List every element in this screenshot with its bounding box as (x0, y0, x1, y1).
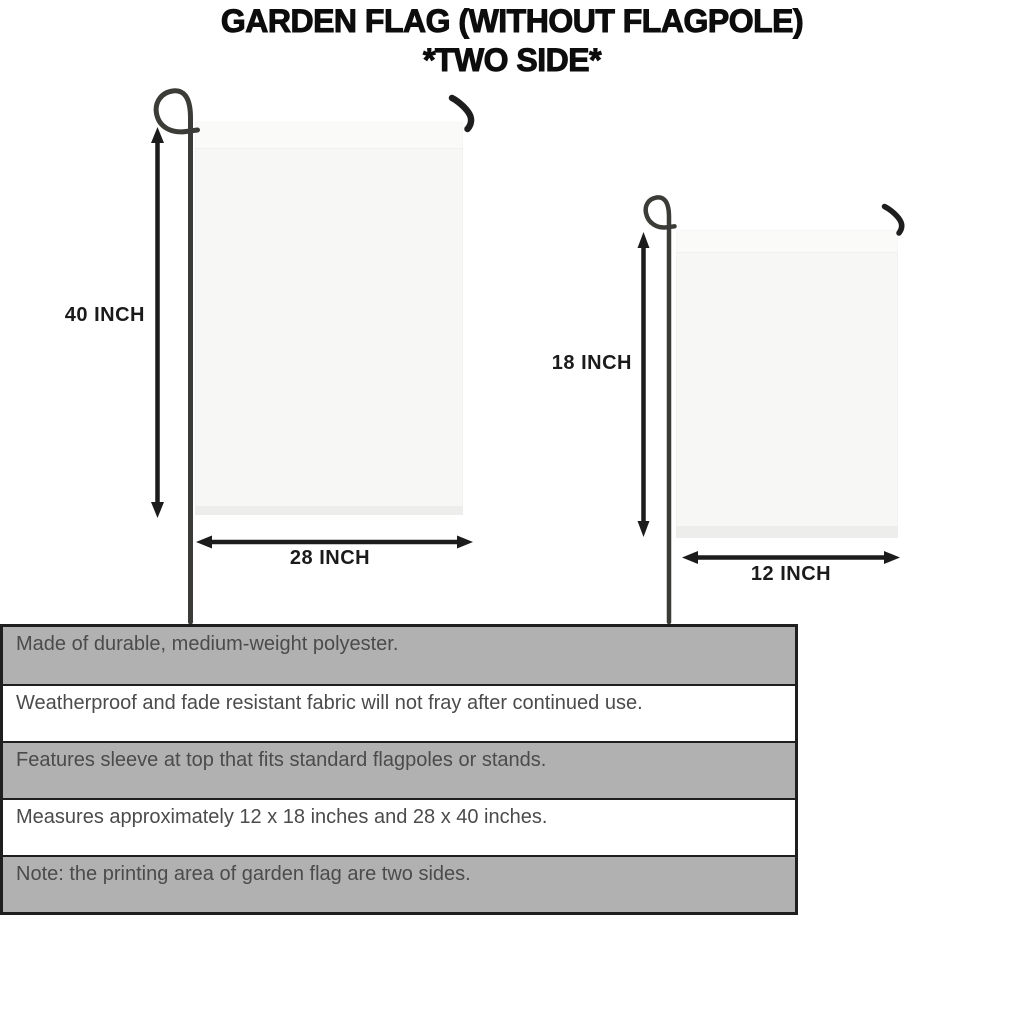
spec-row-weatherproof: Weatherproof and fade resistant fabric w… (3, 684, 795, 741)
large-flag-height-label: 40 INCH (40, 304, 145, 327)
large-flag-width-label: 28 INCH (230, 547, 430, 570)
large-flag-height-arrow (151, 127, 164, 518)
garden-flag-infographic: GARDEN FLAG (WITHOUT FLAGPOLE) *TWO SIDE… (0, 0, 1024, 1024)
page-subtitle: *TWO SIDE* (0, 41, 1024, 80)
large-flag-hem (195, 506, 463, 515)
large-flag-sleeve (195, 122, 463, 149)
small-flag-width-label: 12 INCH (691, 563, 891, 586)
spec-row-material: Made of durable, medium-weight polyester… (3, 627, 795, 684)
page-title: GARDEN FLAG (WITHOUT FLAGPOLE) (0, 2, 1024, 41)
title-block: GARDEN FLAG (WITHOUT FLAGPOLE) *TWO SIDE… (0, 2, 1024, 80)
small-flag-height-arrow (638, 232, 650, 537)
large-flag-pole (156, 91, 197, 622)
spec-table: Made of durable, medium-weight polyester… (0, 624, 798, 915)
small-flag-canvas (676, 230, 898, 538)
small-flag-height-label: 18 INCH (527, 352, 632, 375)
spec-row-measures: Measures approximately 12 x 18 inches an… (3, 798, 795, 855)
spec-row-sleeve: Features sleeve at top that fits standar… (3, 741, 795, 798)
spec-row-note: Note: the printing area of garden flag a… (3, 855, 795, 912)
small-flag-pole (646, 197, 675, 622)
small-flag-sleeve (676, 230, 898, 253)
small-flag-hem (676, 526, 898, 538)
large-flag-canvas (195, 122, 463, 515)
